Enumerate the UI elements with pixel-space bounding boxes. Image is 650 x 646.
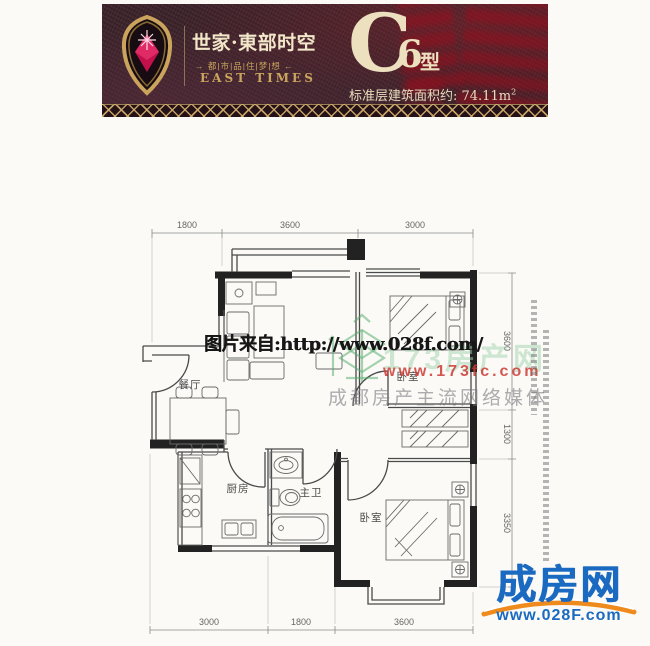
label-bedroom-bottom: 卧室 <box>360 511 383 524</box>
dim-top-1: 1800 <box>177 220 197 230</box>
dim-top-2: 3600 <box>280 220 300 230</box>
image-source-watermark: 图片来自:http://www.028f.com/ <box>204 330 483 356</box>
footer-site-logo: 成房网 www.028F.com <box>478 564 640 636</box>
label-bath: 主卫 <box>300 487 323 499</box>
dim-right-3: 3350 <box>502 513 512 533</box>
footer-url-text: www.028F.com <box>478 607 640 625</box>
portal-slogan-watermark: 成都房产主流网络媒体 <box>328 383 548 410</box>
fine-print-column <box>543 330 549 562</box>
fine-print-column <box>531 300 537 415</box>
structural-walls <box>150 239 477 587</box>
footer-brand-text: 成房网 <box>478 564 640 606</box>
dim-bottom-1: 3000 <box>199 617 219 627</box>
floorplan-drawing: 1800 3600 3000 3000 1800 3600 3600 1300 … <box>0 0 650 646</box>
dim-bottom-2: 1800 <box>291 617 311 627</box>
kitchen-fixtures <box>178 455 256 545</box>
duct-block <box>347 239 365 260</box>
dim-right-2: 1300 <box>502 424 512 444</box>
label-kitchen: 厨房 <box>227 482 250 495</box>
dim-top-3: 3000 <box>405 220 425 230</box>
portal-url-watermark: www.173fc.com <box>383 363 541 381</box>
label-dining: 餐厅 <box>179 378 202 391</box>
bedroom-bottom-furniture <box>386 482 468 577</box>
floorplan-page: 世家·東部时空 → 都|市|品|住|梦|想 ← EAST TIMES C 6 型… <box>0 0 650 646</box>
dim-bottom-3: 3600 <box>394 617 414 627</box>
